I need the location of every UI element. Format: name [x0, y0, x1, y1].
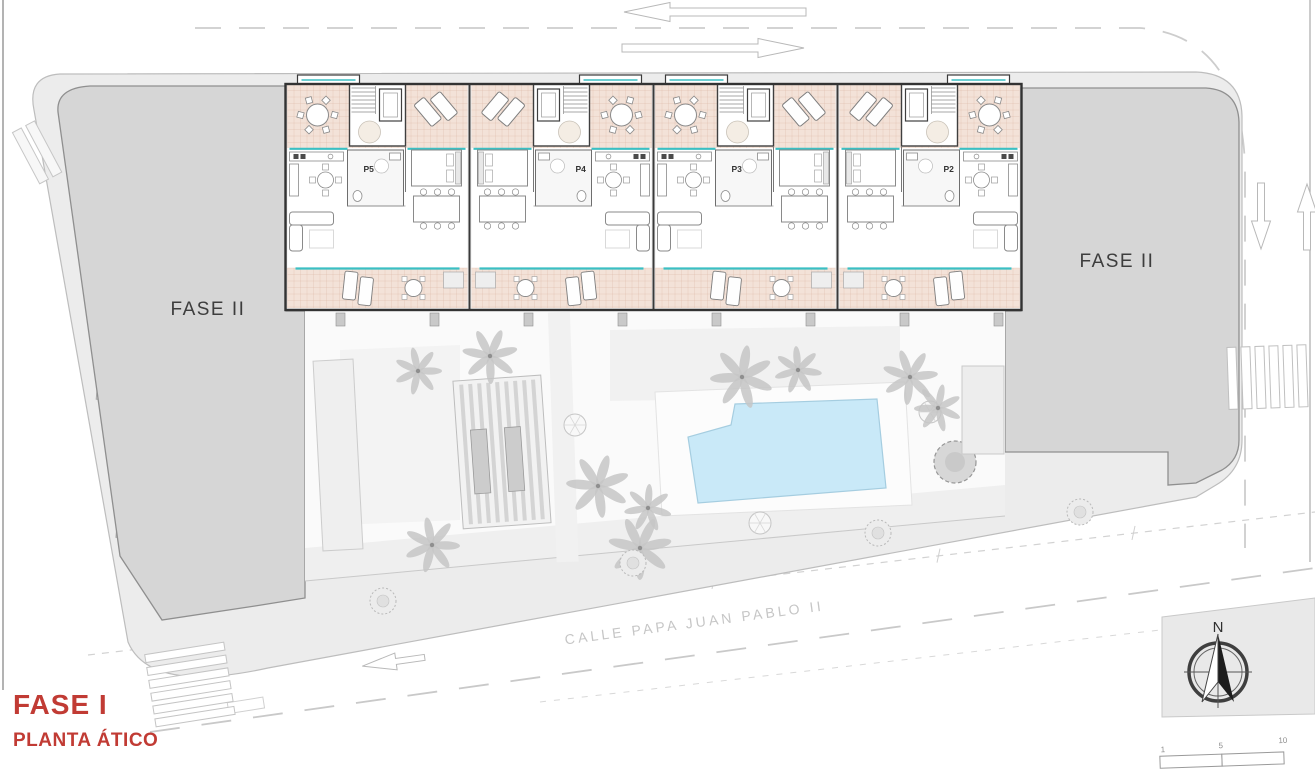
arrow-right-icon [622, 39, 804, 58]
arrow-down-icon [1252, 183, 1271, 249]
parasol-icon [749, 512, 771, 534]
arrow-up-icon [1298, 184, 1315, 250]
phase1-title: FASE I [13, 689, 108, 720]
street-tree-icon [1067, 499, 1093, 525]
fase2-left-building [58, 86, 305, 620]
fase2-left-label: FASE II [171, 299, 246, 320]
scale-bar: 1 5 10 [1159, 736, 1288, 768]
apartment-unit: P2 [838, 75, 1022, 310]
compass-north-label: N [1213, 619, 1224, 636]
pergola [453, 375, 551, 529]
arrow-left-icon [624, 3, 806, 22]
unit-label: P5 [364, 164, 375, 174]
unit-label: P2 [944, 164, 955, 174]
scale-tick-0: 1 [1160, 745, 1165, 754]
unit-label: P3 [732, 164, 743, 174]
corner-sidewalk-panel [1162, 598, 1315, 717]
street-tree-icon [370, 588, 396, 614]
site-plan-canvas: FASE II FASE II P5P4P3P2 [0, 0, 1315, 778]
scale-tick-2: 10 [1278, 736, 1288, 745]
apartment-unit: P5 [286, 75, 470, 310]
phase1-subtitle: PLANTA ÁTICO [13, 729, 158, 751]
parasol-icon [564, 414, 586, 436]
site-plan-svg: FASE II FASE II P5P4P3P2 [0, 0, 1315, 778]
fase2-right-label: FASE II [1080, 251, 1155, 272]
fase1-building: P5P4P3P2 [286, 75, 1022, 310]
unit-label: P4 [576, 164, 587, 174]
apartment-unit: P3 [654, 75, 838, 310]
leafy-tree-core [945, 452, 965, 472]
street-tree-icon [865, 520, 891, 546]
title-block: FASE I PLANTA ÁTICO [13, 689, 158, 751]
scale-tick-1: 5 [1218, 741, 1223, 750]
arrow-street-left-icon [361, 649, 426, 675]
street-tree-icon [620, 550, 646, 576]
garden-planter-right [962, 366, 1004, 454]
apartment-unit: P4 [470, 75, 654, 310]
fase2-right-building [1005, 88, 1239, 485]
